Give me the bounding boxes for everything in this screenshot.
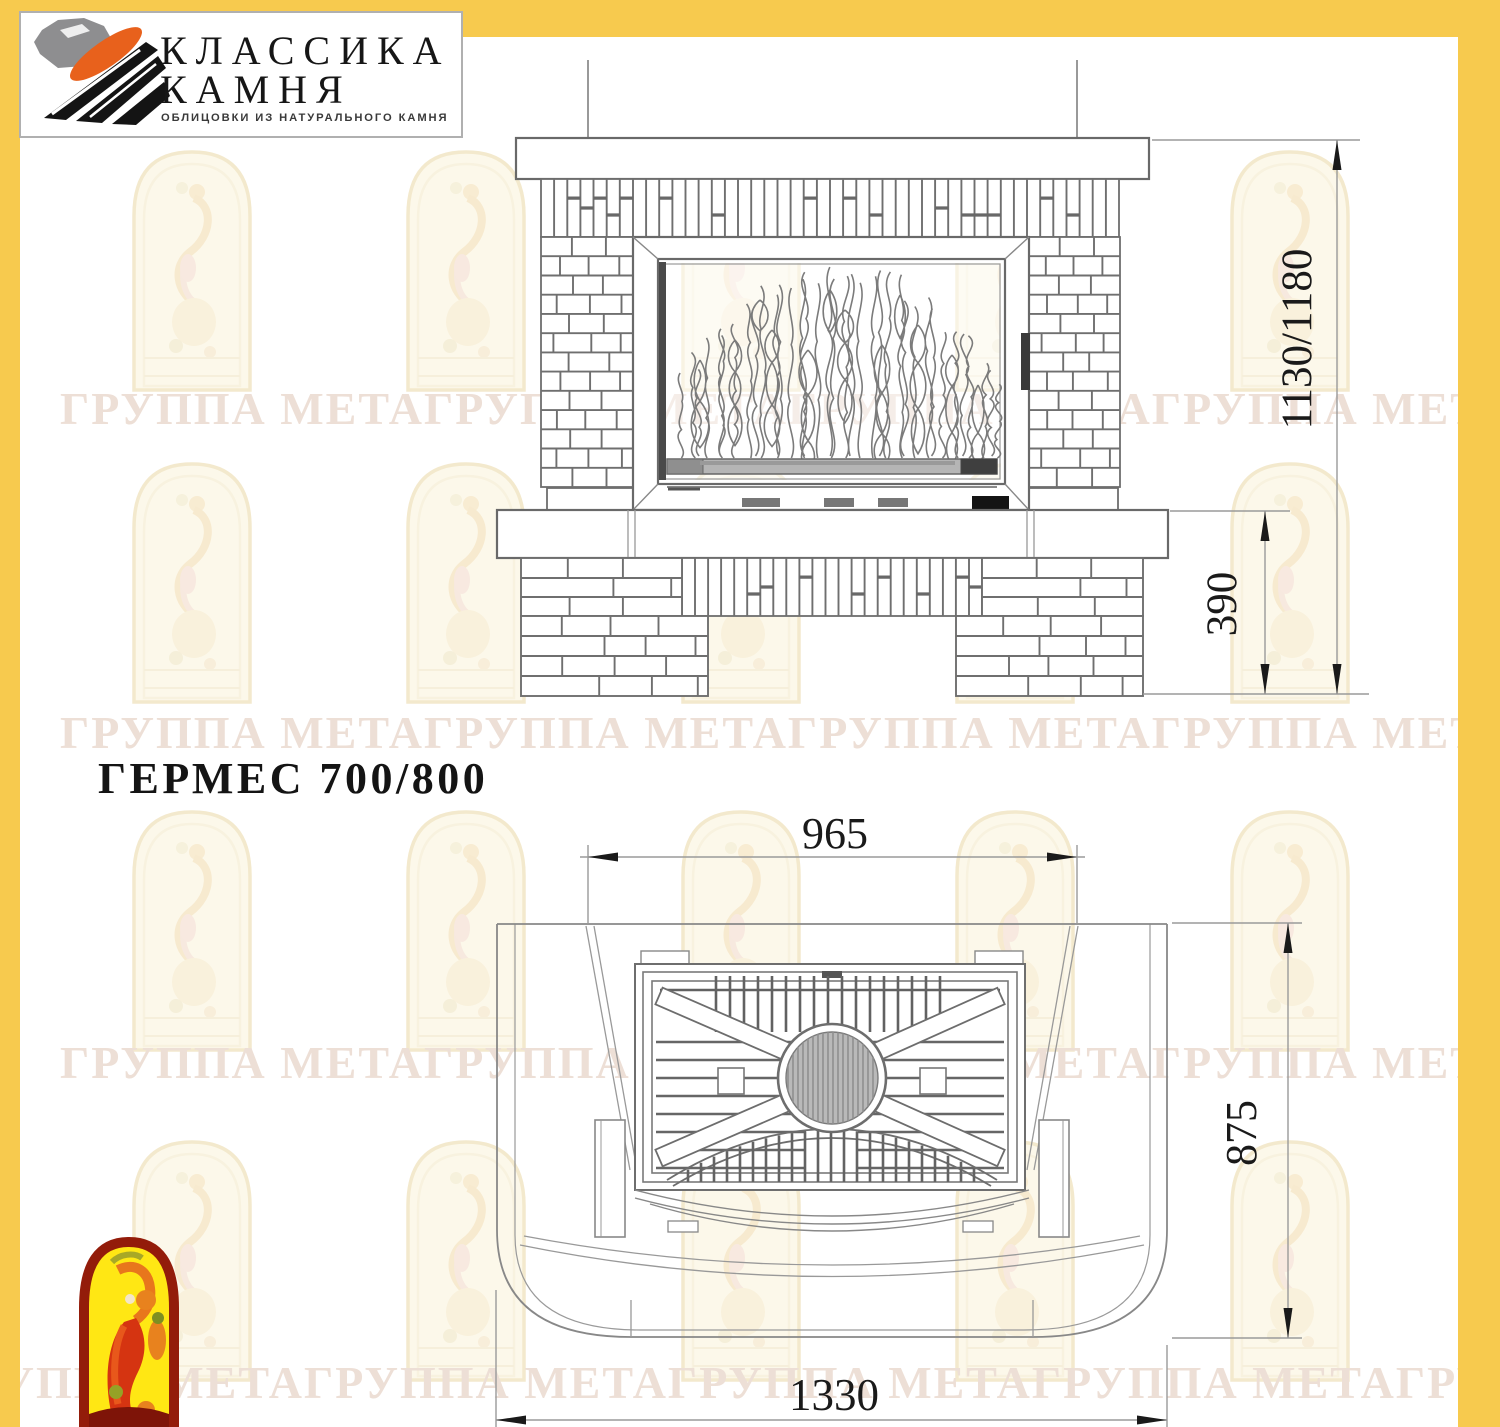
svg-text:965: 965 (802, 809, 868, 858)
svg-text:875: 875 (1217, 1100, 1266, 1166)
svg-text:ГРУППА МЕТАГРУППА МЕТАГРУППА М: ГРУППА МЕТАГРУППА МЕТАГРУППА МЕТАГРУППА … (0, 1357, 1500, 1408)
svg-text:390: 390 (1199, 572, 1246, 637)
svg-text:КАМНЯ: КАМНЯ (160, 67, 352, 112)
svg-text:1130/1180: 1130/1180 (1274, 249, 1321, 430)
svg-text:1330: 1330 (789, 1370, 879, 1420)
svg-text:ГЕРМЕС 700/800: ГЕРМЕС 700/800 (98, 754, 488, 803)
svg-text:ОБЛИЦОВКИ ИЗ НАТУРАЛЬНОГО КАМН: ОБЛИЦОВКИ ИЗ НАТУРАЛЬНОГО КАМНЯ (161, 112, 448, 124)
svg-text:ГРУППА МЕТАГРУППА МЕТАГРУППА М: ГРУППА МЕТАГРУППА МЕТАГРУППА МЕТАГРУППА … (60, 707, 1500, 758)
